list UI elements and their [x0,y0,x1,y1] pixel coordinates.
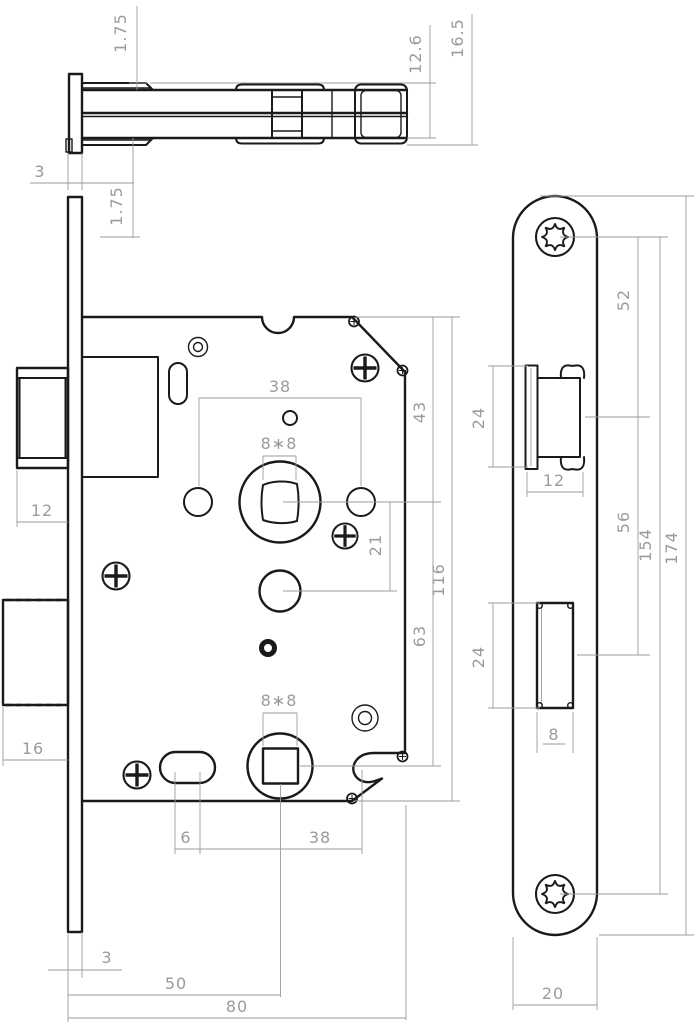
dim-slot-width: 6 [180,828,191,847]
dim-plate-thickness-bottom: 3 [101,948,112,967]
dim-latch-width: 12 [31,501,53,520]
oval-slot [160,752,215,783]
dim-flange-bottom: 1.75 [107,186,126,226]
dim-spindle-hole: 8∗8 [261,434,298,453]
dim-outer-height: 16.5 [448,18,467,58]
small-hole [283,411,297,425]
phillips-screw-icon [352,355,379,382]
bushing-hole-bottom [352,705,378,731]
dim-backset: 50 [165,974,187,993]
phillips-screw-icon [103,563,130,590]
dim-latch-to-deadbolt: 56 [614,511,633,533]
faceplate-front [68,197,82,932]
side-view-dimensions: 52 56 154 174 24 12 24 8 20 [469,196,694,1010]
latch-bolt-front [17,368,68,468]
deadbolt-side [537,603,574,709]
faceplate-outline [513,196,597,935]
dim-deadbolt-width: 16 [22,739,44,758]
dim-screw-to-latch: 52 [614,289,633,311]
slot-hole [169,363,187,404]
dim-case-height: 116 [429,563,448,597]
pivot-pin-icon [398,366,408,376]
handle-hole-left [184,488,212,516]
dim-key-hole: 8∗8 [261,691,298,710]
phillips-screw-icon [332,523,357,548]
dim-plate-width: 20 [542,984,564,1003]
front-view-dimensions: 38 8∗8 21 43 63 116 8∗8 6 38 12 16 3 50 [3,317,460,1022]
dim-plate-length: 174 [662,531,681,565]
dim-spindle-to-key: 63 [410,625,429,647]
dim-latch-height: 24 [469,407,488,429]
dim-spindle-to-hub: 21 [366,534,385,556]
rivet [262,642,275,655]
dim-plate-thickness-top: 3 [34,162,45,181]
dim-top-to-spindle: 43 [410,401,429,423]
case-profile [66,83,407,152]
top-section-view: 1.75 12.6 16.5 3 1.75 [30,6,478,238]
dim-deadbolt-width-side: 8 [548,725,559,744]
dim-deadbolt-height: 24 [469,646,488,668]
phillips-screw-icon [124,762,151,789]
side-view: 52 56 154 174 24 12 24 8 20 [469,196,694,1010]
dim-latch-width-side: 12 [543,471,565,490]
pivot-pin-icon [398,752,408,762]
front-view: 38 8∗8 21 43 63 116 8∗8 6 38 12 16 3 50 [3,197,460,1022]
bushing-hole-top [189,338,208,357]
dim-key-spacing: 38 [309,828,331,847]
dim-handle-spacing: 38 [269,377,291,396]
dim-screw-spacing: 154 [636,528,655,562]
key-square-hole [263,749,298,784]
dim-case-depth: 80 [226,997,248,1016]
dim-inner-height: 12.6 [406,34,425,74]
pivot-pin-icon [347,794,357,804]
dim-flange-top: 1.75 [111,13,130,53]
latch-side [526,365,585,469]
faceplate-section [69,74,82,153]
case-holes [103,317,408,804]
pivot-pin-icon [349,317,359,327]
lock-technical-drawing: 1.75 12.6 16.5 3 1.75 [0,0,700,1027]
top-view-dimensions: 1.75 12.6 16.5 3 1.75 [30,6,478,238]
deadbolt-front [3,600,68,705]
